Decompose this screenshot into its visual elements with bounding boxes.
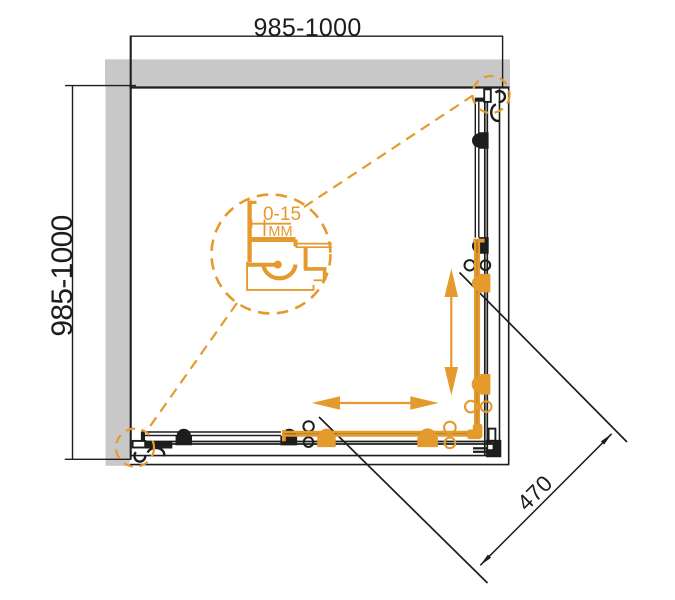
svg-text:MM: MM — [268, 224, 292, 240]
svg-text:0-15: 0-15 — [263, 204, 301, 225]
svg-text:985-1000: 985-1000 — [253, 14, 361, 42]
svg-text:985-1000: 985-1000 — [46, 215, 79, 336]
